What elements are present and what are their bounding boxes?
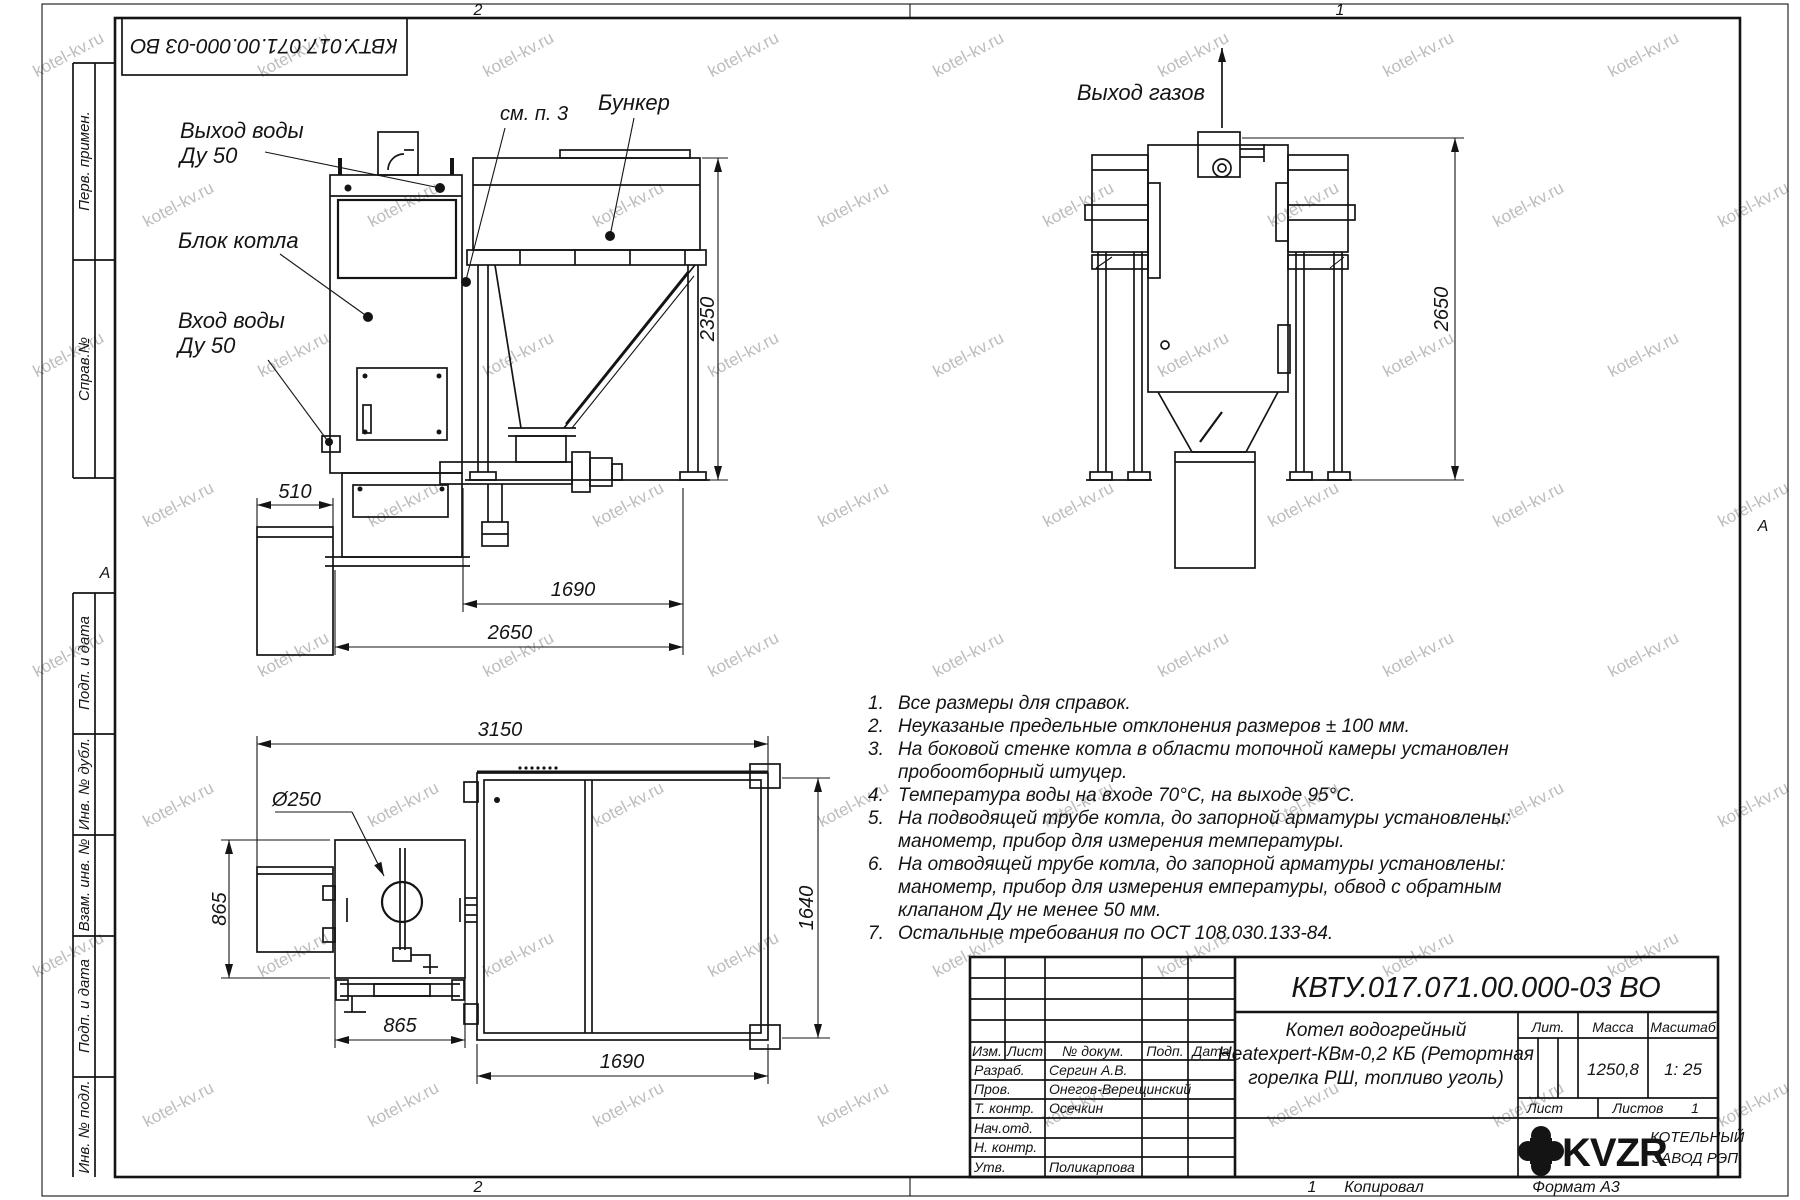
note-line-7: манометр, прибор для измерения температу… <box>868 830 1528 853</box>
note-line-8: 6.На отводящей трубе котла, до запорной … <box>868 853 1528 876</box>
note-text: На отводящей трубе котла, до запорной ар… <box>898 853 1528 876</box>
doc-number: КВТУ.017.071.00.000-03 ВО <box>1291 972 1660 1004</box>
row-marker-left: А <box>99 565 111 582</box>
note-text: пробоотборный штуцер. <box>898 761 1528 784</box>
note-number <box>868 876 898 899</box>
note-line-9: манометр, прибор для измерения емператур… <box>868 876 1528 899</box>
note-line-11: 7.Остальные требования по ОСТ 108.030.13… <box>868 922 1528 945</box>
kvzr-logo-icon <box>1518 1126 1564 1176</box>
sheet-label: Лист <box>1526 1100 1563 1116</box>
dim-3150: 3150 <box>478 719 523 741</box>
note-text: Неуказаные предельные отклонения размеро… <box>898 715 1528 738</box>
note-number <box>868 761 898 784</box>
note-number: 3. <box>868 738 898 761</box>
sidebar-perv-primen: Перв. примен. <box>76 111 93 211</box>
note-number: 1. <box>868 692 898 715</box>
sheet-frame: 2 1 2 1 Копировал Формат А3 А А КВТУ.017… <box>42 2 1788 1196</box>
product-name-1: Котел водогрейный <box>1286 1020 1467 1041</box>
dim-1690-top: 1690 <box>600 1051 645 1073</box>
col-docnum: № докум. <box>1062 1043 1124 1059</box>
note-line-2: 2.Неуказаные предельные отклонения разме… <box>868 715 1528 738</box>
company-line-1: КОТЕЛЬНЫЙ <box>1650 1128 1745 1146</box>
sidebar-podp-data-1: Подп. и дата <box>76 616 93 710</box>
sheets-value: 1 <box>1691 1100 1699 1116</box>
format-label: Формат А3 <box>1532 1179 1620 1196</box>
lit-label: Лит. <box>1531 1019 1565 1035</box>
scale-value: 1: 25 <box>1664 1060 1702 1079</box>
dim-2350: 2350 <box>697 297 719 343</box>
label-water-out-2: Ду 50 <box>177 143 238 168</box>
dim-diameter-250: Ø250 <box>271 789 321 811</box>
scale-label: Масштаб <box>1650 1019 1717 1035</box>
top-stamp-docnumber: КВТУ.017.071.00.000-03 ВО <box>130 34 397 57</box>
label-water-out-1: Выход воды <box>180 118 304 143</box>
role-utv: Утв. <box>973 1159 1006 1175</box>
note-number: 7. <box>868 922 898 945</box>
sidebar-podp-data-2: Подп. и дата <box>76 959 93 1053</box>
note-text: Остальные требования по ОСТ 108.030.133-… <box>898 922 1528 945</box>
note-line-3: 3.На боковой стенке котла в области топо… <box>868 738 1528 761</box>
note-text: манометр, прибор для измерения емператур… <box>898 876 1528 899</box>
dim-865-bottom: 865 <box>383 1015 417 1037</box>
col-list: Лист <box>1006 1043 1043 1059</box>
sidebar-inv-podl: Инв. № подл. <box>76 1080 93 1173</box>
name-tkontr: Осечкин <box>1049 1100 1104 1116</box>
zone-bottom-left: 2 <box>473 1179 483 1196</box>
top-view: 3150 Ø250 865 865 1690 1640 <box>209 719 830 1084</box>
col-izm: Изм. <box>972 1043 1002 1059</box>
note-text: Все размеры для справок. <box>898 692 1528 715</box>
name-razrab: Сергин А.В. <box>1049 1062 1127 1078</box>
sidebar-sprav-no: Справ.№ <box>76 337 93 401</box>
label-gas-out: Выход газов <box>1077 80 1205 105</box>
label-boiler-block: Блок котла <box>178 228 299 253</box>
note-line-5: 4.Температура воды на входе 70°С, на вых… <box>868 784 1528 807</box>
role-prov: Пров. <box>974 1081 1011 1097</box>
zone-top-left: 2 <box>473 2 483 19</box>
zone-bottom-right: 1 <box>1308 1179 1317 1196</box>
dim-1640: 1640 <box>796 886 818 931</box>
note-text: Температура воды на входе 70°С, на выход… <box>898 784 1528 807</box>
note-text: На подводящей трубе котла, до запорной а… <box>898 807 1528 830</box>
label-see-note-3: см. п. 3 <box>500 103 568 125</box>
note-line-4: пробоотборный штуцер. <box>868 761 1528 784</box>
note-line-1: 1.Все размеры для справок. <box>868 692 1528 715</box>
note-number: 5. <box>868 807 898 830</box>
role-nkontr: Н. контр. <box>974 1139 1037 1155</box>
note-text: клапаном Ду не менее 50 мм. <box>898 899 1528 922</box>
role-nachotd: Нач.отд. <box>974 1120 1033 1136</box>
dim-1690-front: 1690 <box>551 579 596 601</box>
role-razrab: Разраб. <box>974 1062 1025 1078</box>
dim-510: 510 <box>278 481 311 503</box>
note-text: манометр, прибор для измерения температу… <box>898 830 1528 853</box>
note-line-10: клапаном Ду не менее 50 мм. <box>868 899 1528 922</box>
note-number: 4. <box>868 784 898 807</box>
note-text: На боковой стенке котла в области топочн… <box>898 738 1528 761</box>
note-number <box>868 899 898 922</box>
dim-865-left: 865 <box>209 891 231 925</box>
technical-notes: 1.Все размеры для справок. 2.Неуказаные … <box>868 692 1528 945</box>
sheets-label: Листов <box>1612 1100 1664 1116</box>
name-utv: Поликарпова <box>1049 1159 1135 1175</box>
product-name-2: Heatexpert-КВм-0,2 КБ (Ретортная <box>1218 1044 1534 1065</box>
zone-top-right: 1 <box>1336 2 1345 19</box>
front-view: Выход воды Ду 50 Блок котла Вход воды Ду… <box>175 90 728 655</box>
dim-2650-side: 2650 <box>1431 287 1453 333</box>
sidebar-vzam-inv: Взам. инв. № <box>76 839 93 932</box>
col-podp: Подп. <box>1146 1043 1183 1059</box>
dim-2650-front: 2650 <box>487 622 533 644</box>
note-number <box>868 830 898 853</box>
title-block: Изм. Лист № докум. Подп. Дата Разраб. Се… <box>970 957 1745 1177</box>
label-water-in-1: Вход воды <box>178 308 285 333</box>
row-marker-right: А <box>1757 518 1769 535</box>
drawing-sheet: kotel-kv.rukotel-kv.rukotel-kv.rukotel-k… <box>0 0 1800 1200</box>
note-number: 6. <box>868 853 898 876</box>
product-name-3: горелка РШ, топливо уголь) <box>1248 1068 1504 1089</box>
label-bunker: Бункер <box>598 90 670 115</box>
company-line-2: ЗАВОД РЭП <box>1652 1150 1738 1167</box>
copied-label: Копировал <box>1344 1179 1424 1196</box>
sidebar-inv-dubl: Инв. № дубл. <box>76 738 93 830</box>
label-water-in-2: Ду 50 <box>175 333 236 358</box>
note-number: 2. <box>868 715 898 738</box>
note-line-6: 5.На подводящей трубе котла, до запорной… <box>868 807 1528 830</box>
role-tkontr: Т. контр. <box>974 1100 1034 1116</box>
left-margin-columns: Перв. примен. Справ.№ Подп. и дата Инв. … <box>73 63 115 1177</box>
side-view: Выход газов 2650 <box>1077 48 1464 568</box>
mass-value: 1250,8 <box>1587 1060 1640 1079</box>
mass-label: Масса <box>1592 1019 1634 1035</box>
engineering-drawing: 2 1 2 1 Копировал Формат А3 А А КВТУ.017… <box>0 0 1800 1200</box>
name-prov: Онегов-Верещинский <box>1049 1081 1191 1097</box>
